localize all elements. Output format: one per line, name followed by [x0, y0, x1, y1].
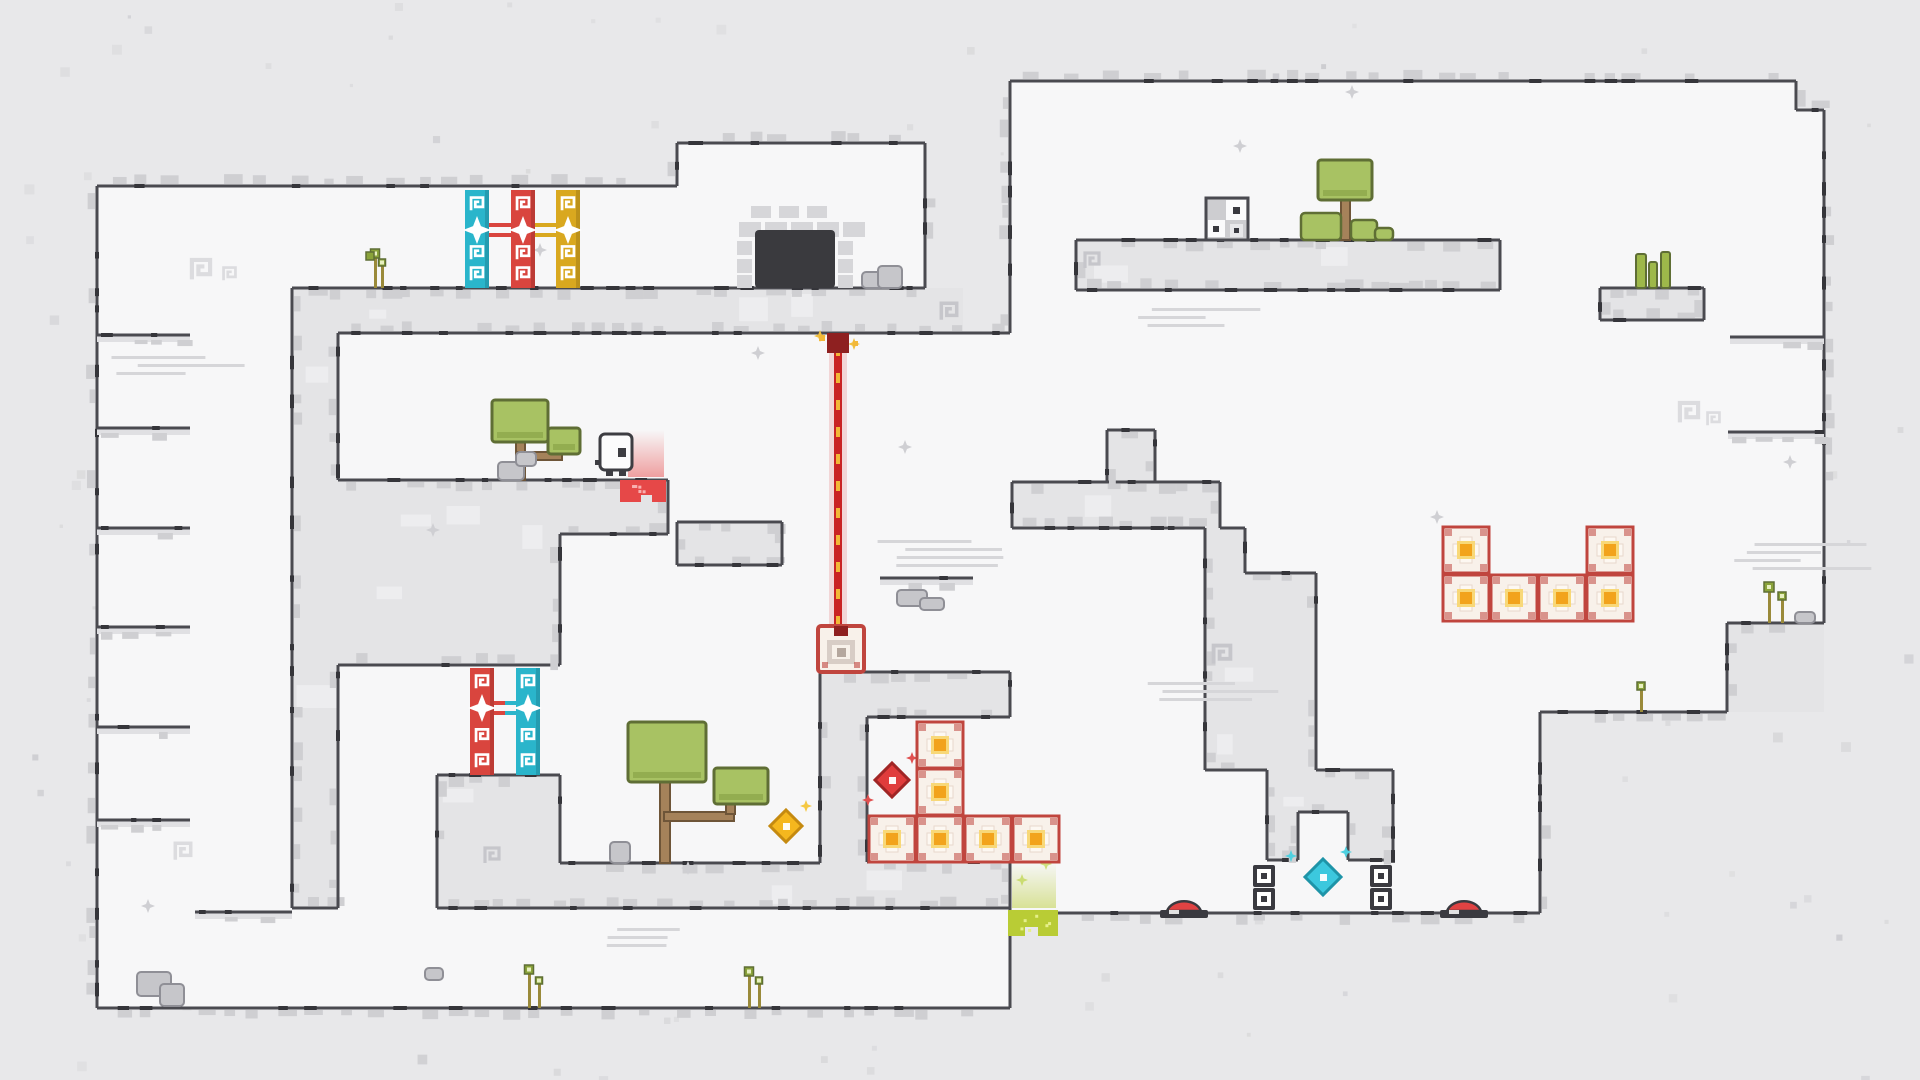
bush: [1351, 220, 1377, 240]
brick: [843, 222, 865, 237]
crate[interactable]: [1013, 816, 1059, 862]
brick: [807, 206, 827, 218]
player-body: [600, 434, 632, 470]
crate[interactable]: [1539, 575, 1585, 621]
cactus: [1661, 252, 1670, 288]
bush: [1301, 213, 1341, 240]
room: [1796, 110, 1824, 623]
brick: [737, 275, 752, 288]
cactus: [1636, 254, 1646, 288]
crate[interactable]: [1443, 575, 1489, 621]
brick: [751, 206, 771, 218]
rock: [610, 842, 630, 863]
rock: [1795, 612, 1815, 623]
player-character[interactable]: [595, 434, 632, 476]
rock: [878, 266, 902, 288]
gate-cyan-bottom[interactable]: [514, 668, 542, 775]
laser-dash: [836, 508, 840, 518]
crate[interactable]: [1443, 527, 1489, 573]
bush: [1375, 228, 1393, 240]
crate[interactable]: [1587, 527, 1633, 573]
laser-dash: [836, 562, 840, 572]
brick: [838, 241, 853, 255]
door-opening[interactable]: [755, 230, 835, 288]
brick: [779, 206, 799, 218]
room: [1010, 81, 1796, 712]
crate[interactable]: [1491, 575, 1537, 621]
gate-red-bottom[interactable]: [468, 668, 496, 775]
brick: [737, 241, 752, 255]
socket-block[interactable]: [1370, 888, 1392, 910]
room: [97, 908, 1010, 1008]
gate-cyan-top[interactable]: [463, 190, 491, 288]
wall-block: [1727, 623, 1824, 712]
rock: [160, 984, 184, 1006]
laser-dash: [836, 589, 840, 599]
crate[interactable]: [869, 816, 915, 862]
crate[interactable]: [917, 722, 963, 768]
crate[interactable]: [1587, 575, 1633, 621]
gate-yellow-top[interactable]: [554, 190, 582, 288]
crate[interactable]: [965, 816, 1011, 862]
dice-block[interactable]: [1206, 198, 1248, 240]
rock: [920, 598, 944, 610]
room: [97, 186, 292, 1008]
rock: [516, 452, 536, 466]
laser-emitter: [827, 333, 849, 353]
gate-red-top[interactable]: [509, 190, 537, 288]
socket-block[interactable]: [1253, 888, 1275, 910]
laser-dash: [836, 535, 840, 545]
brick: [838, 259, 853, 273]
crate[interactable]: [917, 816, 963, 862]
socket-block[interactable]: [1253, 865, 1275, 887]
brick: [737, 259, 752, 273]
brick: [838, 275, 853, 288]
level-canvas: [0, 0, 1920, 1080]
laser-dash: [836, 481, 840, 491]
crate[interactable]: [917, 769, 963, 815]
rock: [425, 968, 443, 980]
laser-dash: [836, 373, 840, 383]
socket-block[interactable]: [1370, 865, 1392, 887]
laser-receiver[interactable]: [818, 626, 864, 672]
room: [338, 775, 437, 908]
game-viewport: [0, 0, 1920, 1080]
cactus: [1649, 262, 1657, 288]
room: [338, 333, 1012, 480]
laser-dash: [836, 454, 840, 464]
laser-dash: [836, 427, 840, 437]
laser-dash: [836, 400, 840, 410]
player-eye: [618, 448, 626, 457]
